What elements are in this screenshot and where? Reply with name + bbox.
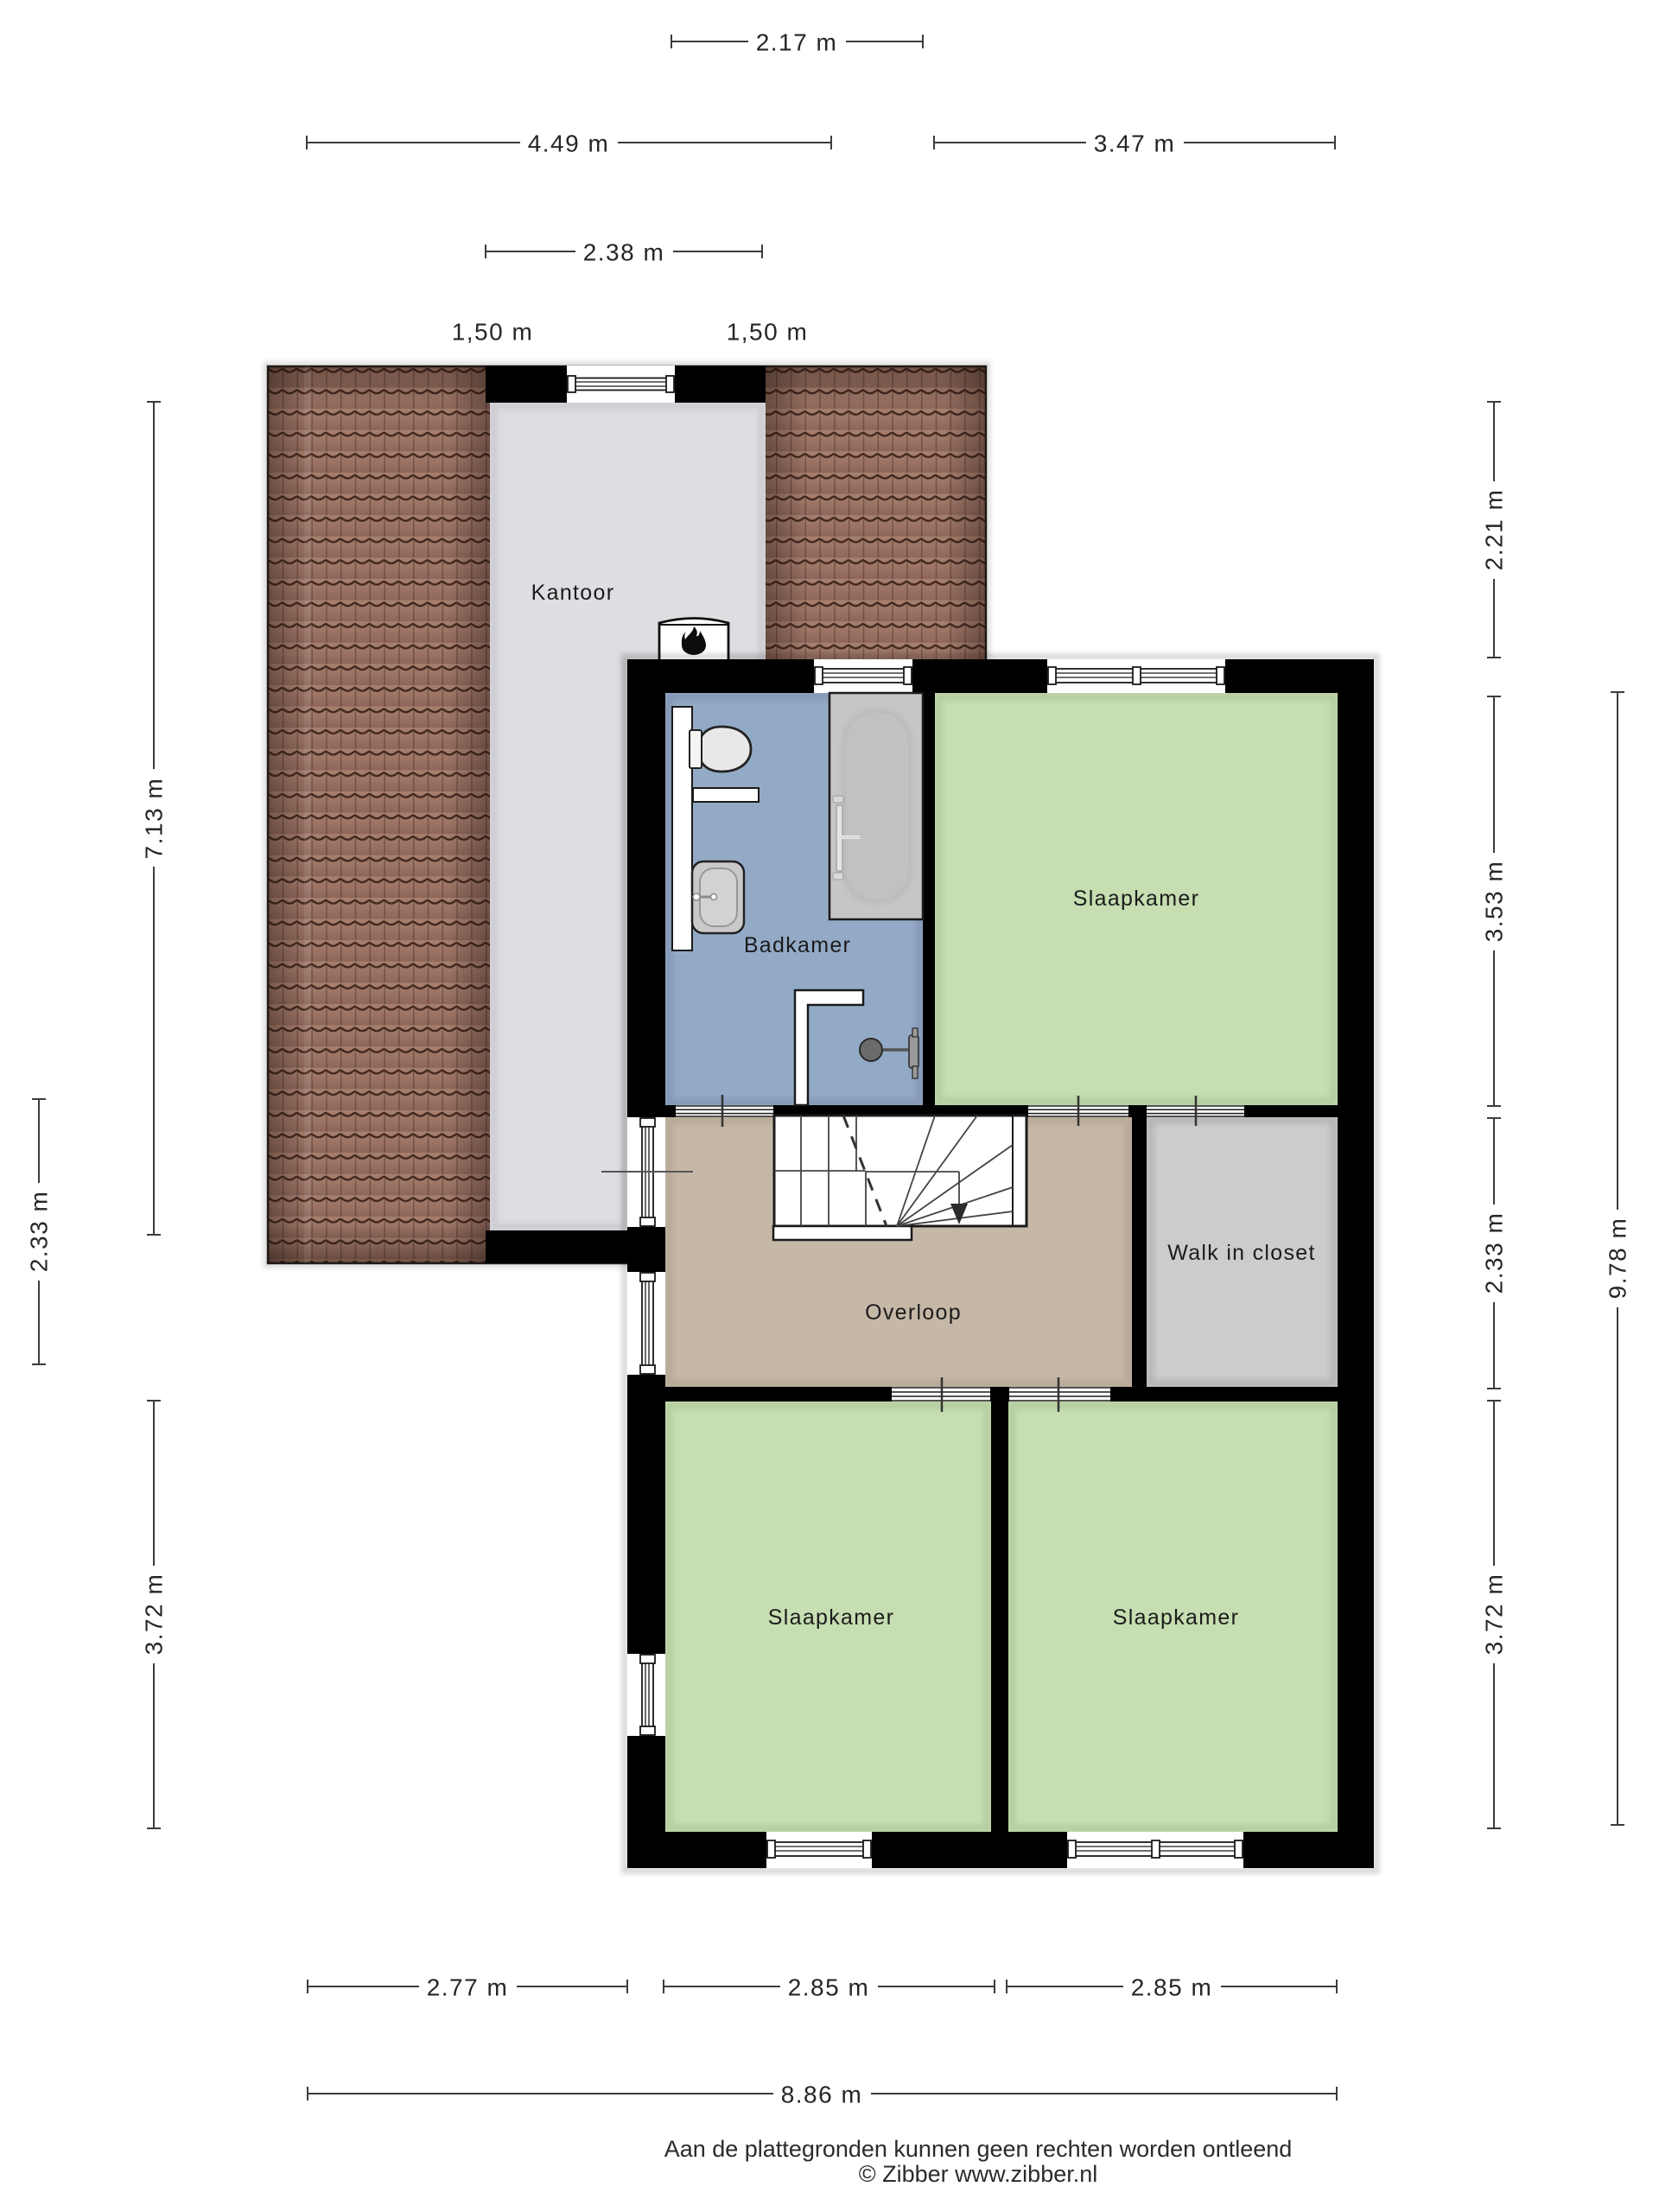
svg-text:2.77 m: 2.77 m [427,1974,509,2001]
svg-text:4.49 m: 4.49 m [528,130,610,157]
svg-text:1,50 m: 1,50 m [727,319,809,346]
svg-text:Overloop: Overloop [865,1300,962,1325]
svg-text:3.72 m: 3.72 m [1481,1573,1508,1656]
svg-text:Kantoor: Kantoor [531,581,615,605]
svg-text:9.78 m: 9.78 m [1605,1217,1631,1300]
svg-text:Slaapkamer: Slaapkamer [768,1605,894,1630]
svg-text:Badkamer: Badkamer [744,933,851,957]
svg-text:3.53 m: 3.53 m [1481,861,1508,943]
svg-text:2.85 m: 2.85 m [788,1974,870,2001]
svg-text:2.33 m: 2.33 m [1481,1212,1508,1294]
svg-text:2.17 m: 2.17 m [756,29,838,56]
svg-text:Slaapkamer: Slaapkamer [1073,887,1199,911]
svg-text:1,50 m: 1,50 m [452,319,534,346]
svg-text:3.47 m: 3.47 m [1094,130,1176,157]
svg-text:8.86 m: 8.86 m [781,2082,863,2108]
svg-text:3.72 m: 3.72 m [141,1573,168,1656]
svg-text:© Zibber www.zibber.nl: © Zibber www.zibber.nl [859,2161,1098,2187]
svg-text:2.21 m: 2.21 m [1481,489,1508,571]
svg-text:2.85 m: 2.85 m [1131,1974,1213,2001]
svg-text:Slaapkamer: Slaapkamer [1113,1605,1239,1630]
svg-text:Aan de plattegronden kunnen ge: Aan de plattegronden kunnen geen rechten… [664,2136,1293,2162]
svg-text:Walk in closet: Walk in closet [1167,1241,1315,1265]
svg-text:7.13 m: 7.13 m [141,778,168,860]
svg-text:2.33 m: 2.33 m [26,1191,53,1273]
svg-text:2.38 m: 2.38 m [583,239,665,266]
